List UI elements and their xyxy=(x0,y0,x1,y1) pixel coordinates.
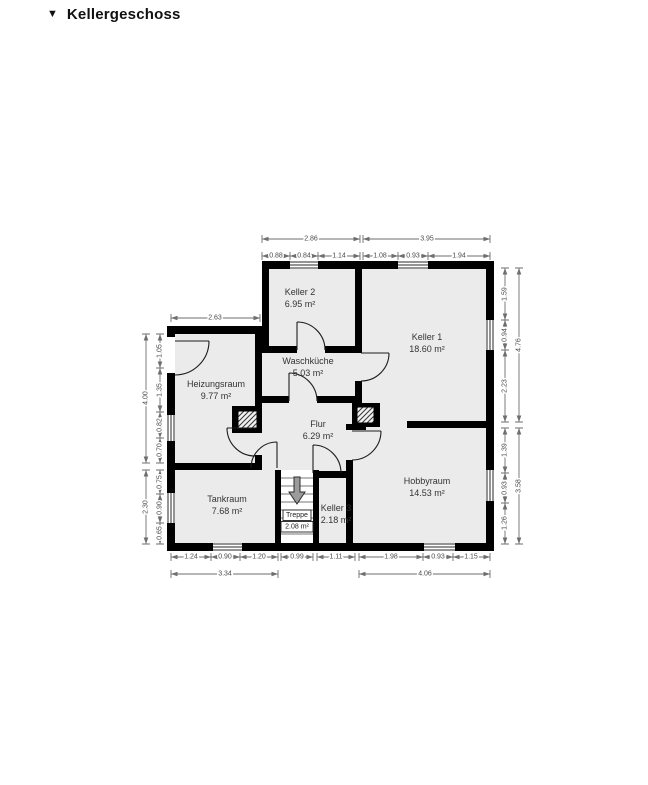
room-tankraum-name: Tankraum xyxy=(207,494,247,504)
dim-label: 3.34 xyxy=(218,571,232,578)
window-symbol xyxy=(167,415,175,441)
dim-label: 0.75 xyxy=(157,475,164,489)
dim-label: 1.35 xyxy=(157,383,164,397)
room-keller3-area: 2.18 m² xyxy=(321,515,352,525)
room-tankraum-area: 7.68 m² xyxy=(212,506,243,516)
room-keller1-area: 18.60 m² xyxy=(409,344,445,354)
dim-label: 0.70 xyxy=(157,443,164,457)
window-symbol xyxy=(486,320,494,350)
room-heizungsraum-area: 9.77 m² xyxy=(201,391,232,401)
dim-label: 0.90 xyxy=(218,554,232,561)
room-hobbyraum-area: 14.53 m² xyxy=(409,488,445,498)
dim-label: 1.24 xyxy=(184,554,198,561)
dim-label: 0.88 xyxy=(269,253,283,260)
room-flur-name: Flur xyxy=(310,419,326,429)
window-symbol xyxy=(486,470,494,501)
floor-plan-drawing: 2.86 0.88 0.84 1.14 3.95 1.08 0.93 1.94 … xyxy=(0,0,648,785)
room-waschkueche-name: Waschküche xyxy=(282,356,333,366)
dim-label: 4.76 xyxy=(516,338,523,352)
dim-label: 2.86 xyxy=(304,236,318,243)
room-keller3-name: Keller 3 xyxy=(321,503,352,513)
room-keller1-name: Keller 1 xyxy=(412,332,443,342)
dim-label: 1.26 xyxy=(502,516,509,530)
dim-label: 1.05 xyxy=(157,344,164,358)
room-hobbyraum-name: Hobbyraum xyxy=(404,476,451,486)
window-symbol xyxy=(424,543,455,551)
room-treppe-area: 2.08 m² xyxy=(285,524,309,531)
dim-label: 0.82 xyxy=(157,418,164,432)
dim-label: 0.93 xyxy=(431,554,445,561)
dim-label: 1.14 xyxy=(332,253,346,260)
dim-label: 3.58 xyxy=(516,479,523,493)
room-keller2-name: Keller 2 xyxy=(285,287,316,297)
dim-label: 2.23 xyxy=(502,379,509,393)
window-symbol xyxy=(213,543,242,551)
dim-label: 1.11 xyxy=(329,554,342,561)
dim-label: 2.30 xyxy=(143,500,150,514)
dim-label: 2.63 xyxy=(208,315,222,322)
window-symbol xyxy=(167,493,175,523)
dim-label: 0.94 xyxy=(502,328,509,342)
dim-label: 1.59 xyxy=(502,287,509,301)
window-symbol xyxy=(398,261,428,269)
dim-label: 3.95 xyxy=(420,236,434,243)
room-keller2-area: 6.95 m² xyxy=(285,299,316,309)
chimney-hatch xyxy=(357,407,374,423)
chimney-hatch xyxy=(238,411,257,428)
room-heizungsraum-name: Heizungsraum xyxy=(187,379,245,389)
dim-label: 0.99 xyxy=(290,554,304,561)
dim-label: 1.08 xyxy=(373,253,387,260)
dim-label: 0.65 xyxy=(157,526,164,540)
floorplan-page: ▼ Kellergeschoss xyxy=(0,0,648,785)
dim-label: 0.93 xyxy=(502,481,509,495)
entry-door-opening xyxy=(167,337,175,373)
dim-label: 1.94 xyxy=(452,253,466,260)
room-treppe-name: Treppe xyxy=(286,512,308,519)
room-flur-area: 6.29 m² xyxy=(303,431,334,441)
dim-label: 0.84 xyxy=(297,253,311,260)
dim-label: 1.15 xyxy=(464,554,478,561)
dim-label: 0.93 xyxy=(406,253,420,260)
dim-label: 0.90 xyxy=(157,501,164,515)
room-waschkueche-area: 5.03 m² xyxy=(293,368,324,378)
dim-label: 1.39 xyxy=(502,443,509,457)
dim-label: 1.20 xyxy=(252,554,266,561)
dim-label: 1.98 xyxy=(384,554,398,561)
dim-label: 4.00 xyxy=(143,391,150,405)
dim-label: 4.06 xyxy=(418,571,432,578)
window-symbol xyxy=(290,261,318,269)
